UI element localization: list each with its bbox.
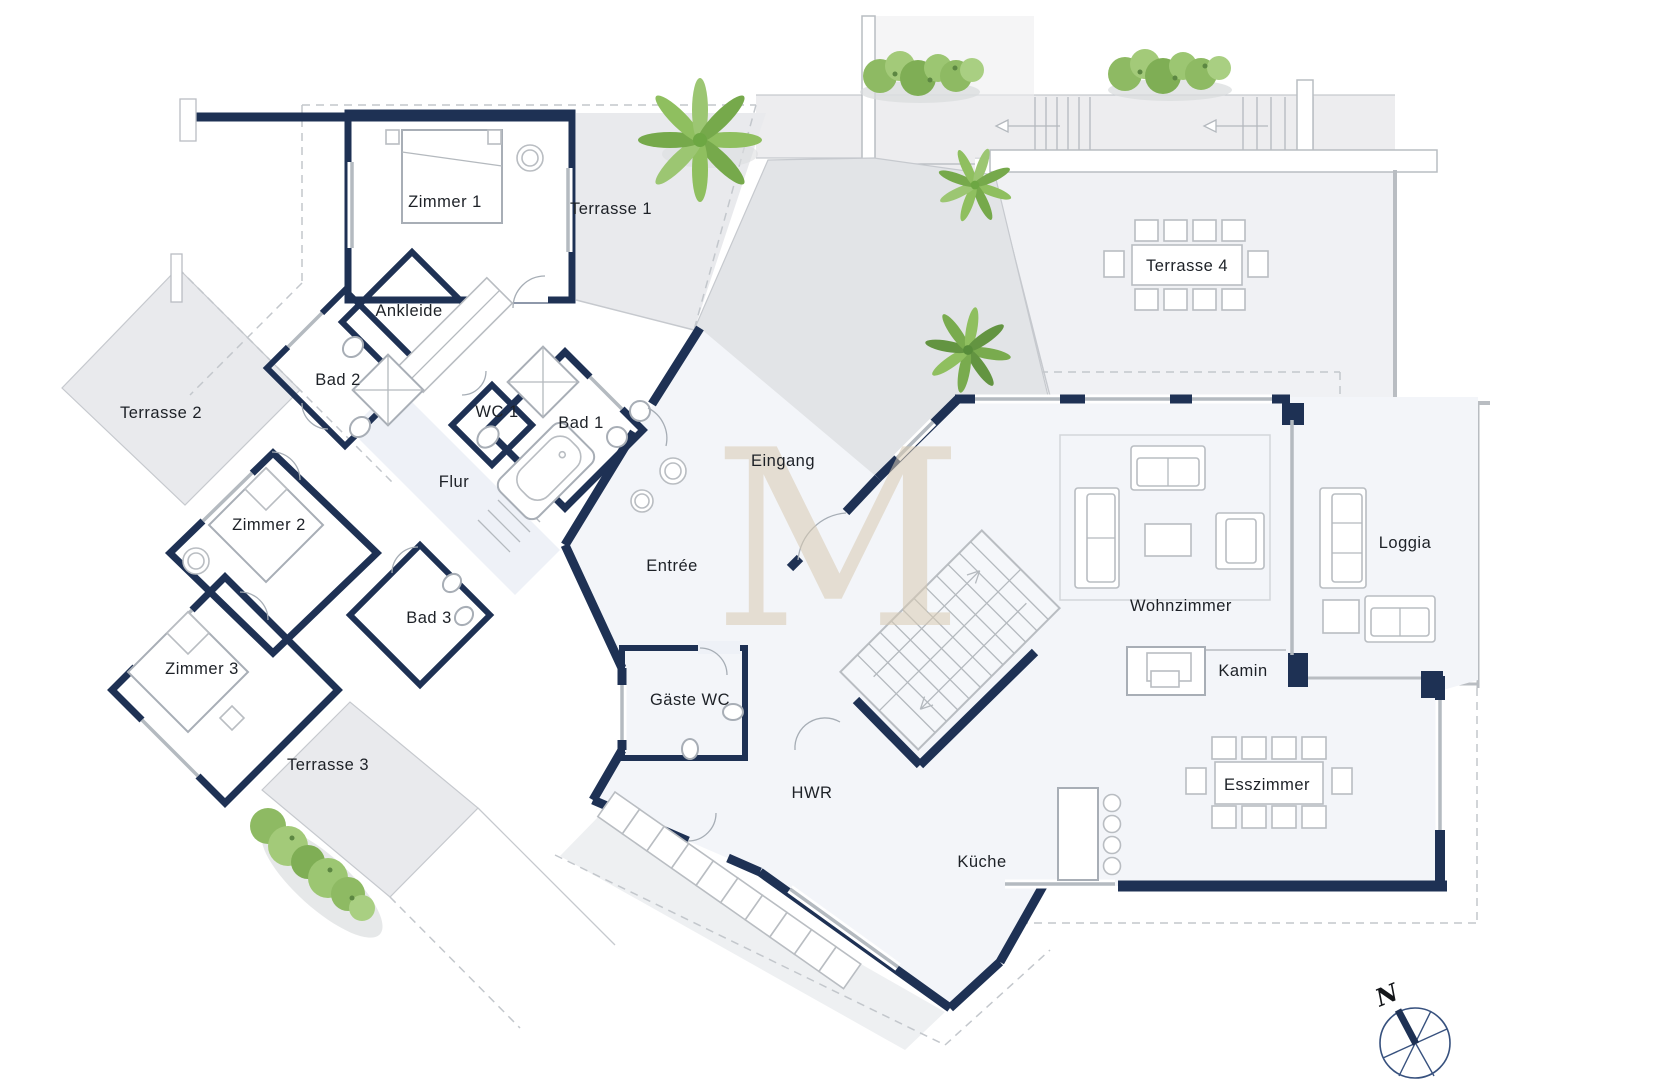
label-loggia: Loggia	[1379, 534, 1432, 552]
label-terrasse3: Terrasse 3	[287, 756, 369, 774]
armchair	[1216, 513, 1264, 569]
watermark-logo: M	[713, 398, 964, 683]
label-gaeste-wc: Gäste WC	[650, 691, 730, 709]
coffee-table	[1145, 524, 1191, 556]
sofa-left	[1075, 488, 1119, 588]
label-zimmer2: Zimmer 2	[232, 516, 306, 534]
label-terrasse2: Terrasse 2	[120, 404, 202, 422]
label-esszimmer: Esszimmer	[1224, 776, 1310, 794]
compass-north-label: N	[1370, 977, 1403, 1013]
label-wc1: WC 1	[475, 403, 518, 421]
palm-tree-large	[638, 78, 762, 202]
loggia-sofa-2	[1365, 596, 1435, 642]
compass-icon: N	[1370, 977, 1450, 1078]
hedge-top-right	[1108, 49, 1232, 101]
label-terrasse4: Terrasse 4	[1146, 257, 1228, 275]
label-hwr: HWR	[792, 784, 833, 802]
label-terrasse1: Terrasse 1	[570, 200, 652, 218]
label-wohnzimmer: Wohnzimmer	[1130, 597, 1232, 615]
label-zimmer3: Zimmer 3	[165, 660, 239, 678]
floor-plan-svg: M Zimmer 1 Terrasse 1 Ankleide Bad 2 Ter…	[0, 0, 1653, 1080]
wall-stub-left	[180, 99, 196, 141]
wall-stub-top	[1297, 80, 1313, 152]
label-bad1: Bad 1	[558, 414, 604, 432]
label-zimmer1: Zimmer 1	[408, 193, 482, 211]
loggia-sofa-1	[1320, 488, 1366, 588]
loggia-table	[1323, 600, 1359, 633]
label-eingang: Eingang	[751, 452, 815, 470]
label-flur: Flur	[439, 473, 469, 491]
label-bad2: Bad 2	[315, 371, 361, 389]
sofa-top	[1131, 446, 1205, 490]
label-ankleide: Ankleide	[375, 302, 442, 320]
label-bad3: Bad 3	[406, 609, 452, 627]
label-kamin: Kamin	[1218, 662, 1267, 680]
label-kueche: Küche	[957, 853, 1006, 871]
label-entree: Entrée	[646, 557, 698, 575]
fireplace	[1127, 647, 1205, 695]
